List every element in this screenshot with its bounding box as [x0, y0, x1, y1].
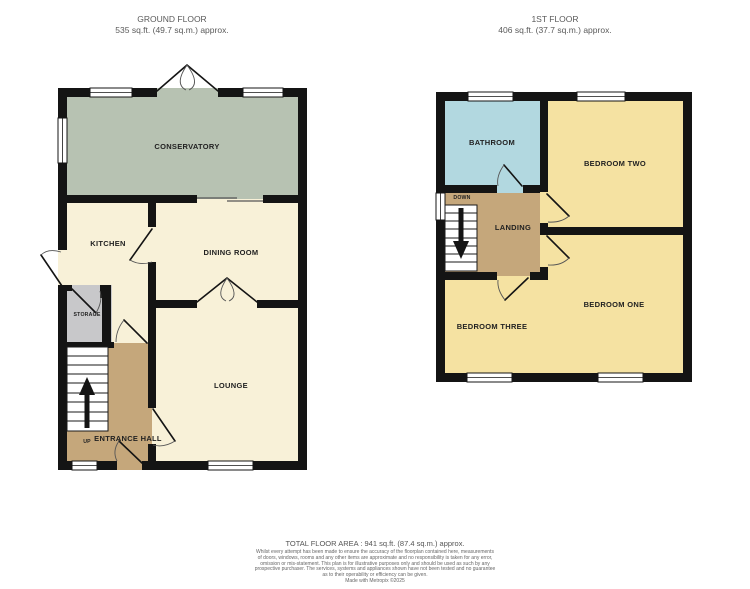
bedroom-two-window	[577, 92, 625, 101]
bedroom-three-window	[467, 373, 512, 382]
footer: TOTAL FLOOR AREA : 941 sq.ft. (87.4 sq.m…	[0, 538, 750, 585]
bedroom-one-window	[598, 373, 643, 382]
lounge-label: LOUNGE	[214, 381, 248, 390]
dining-room-label: DINING ROOM	[204, 248, 259, 257]
first-floor-stairs	[445, 205, 477, 271]
first-floor-plan: BATHROOM BEDROOM TWO LANDING BEDROOM THR…	[436, 92, 692, 382]
down-label: DOWN	[453, 195, 470, 201]
conservatory-top-window-2	[243, 88, 283, 97]
floorplan-page: GROUND FLOOR 535 sq.ft. (49.7 sq.m.) app…	[0, 0, 750, 589]
conservatory-left-window	[58, 118, 67, 163]
conservatory-french-doors	[157, 65, 218, 91]
conservatory-top-window	[90, 88, 132, 97]
bathroom-label: BATHROOM	[469, 138, 515, 147]
bedroom-one-label: BEDROOM ONE	[584, 300, 645, 309]
landing-label: LANDING	[495, 223, 531, 232]
kitchen-label: KITCHEN	[90, 239, 125, 248]
bedroom-three-label: BEDROOM THREE	[457, 322, 528, 331]
conservatory-label: CONSERVATORY	[154, 142, 219, 151]
entrance-hall-label: ENTRANCE HALL	[94, 434, 162, 443]
storage-label: STORAGE	[74, 312, 101, 318]
ground-floor-stairs	[67, 347, 108, 431]
hall-front-window	[72, 461, 97, 470]
metropix-credit: Made with Metropix ©2025	[0, 579, 750, 585]
bathroom-window	[468, 92, 513, 101]
bedroom-two-label: BEDROOM TWO	[584, 159, 646, 168]
lounge-front-window	[208, 461, 253, 470]
up-label: UP	[83, 439, 91, 445]
landing-side-window	[436, 193, 445, 220]
floorplan-drawing: CONSERVATORY KITCHEN DINING ROOM LOUNGE …	[0, 0, 750, 589]
ground-floor-plan: CONSERVATORY KITCHEN DINING ROOM LOUNGE …	[41, 65, 307, 470]
